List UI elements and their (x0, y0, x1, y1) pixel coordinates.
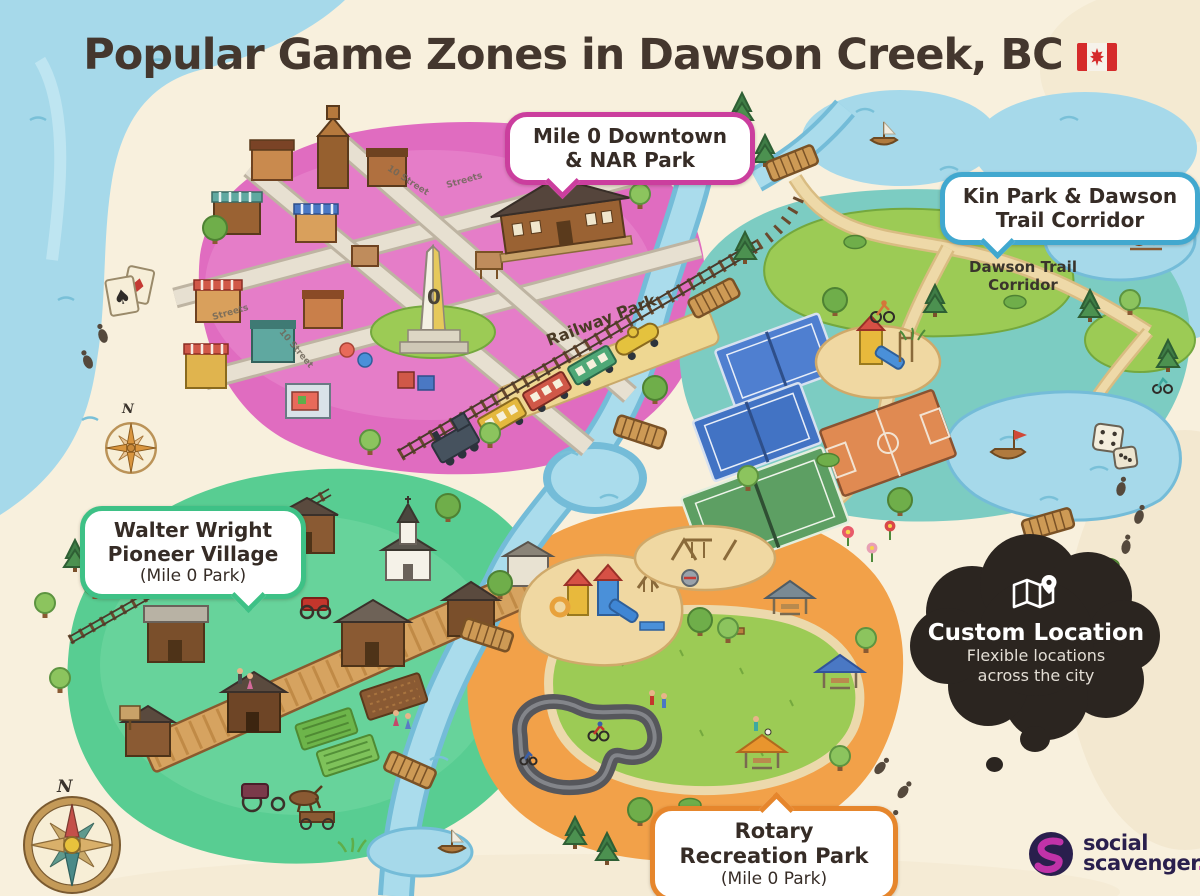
social-scavenger-logo-text: social scavenger. (1083, 834, 1200, 874)
callout-mile0-downtown: Mile 0 Downtown & NAR Park (505, 112, 755, 185)
callout-pioneer-village: Walter Wright Pioneer Village (Mile 0 Pa… (80, 506, 306, 599)
compass-north-label-small: N (122, 402, 134, 417)
social-scavenger-logo: social scavenger. (1028, 831, 1200, 877)
custom-location-content: Custom Location Flexible locations acros… (908, 534, 1164, 744)
dawson-trail-label: Dawson Trail Corridor (950, 258, 1096, 294)
cloud-dot (986, 757, 1003, 772)
custom-location-cloud: Custom Location Flexible locations acros… (908, 534, 1164, 744)
social-scavenger-logo-icon (1028, 831, 1074, 877)
logo-word-scavenger: scavenger. (1083, 854, 1200, 874)
callout-line: Walter Wright (99, 519, 287, 543)
dawson-trail-line1: Dawson Trail (950, 258, 1096, 276)
obelisk-zero-label: 0 (427, 285, 441, 309)
rotary-swings-area (635, 526, 775, 590)
compass-rose-large (24, 797, 120, 893)
callout-line: Pioneer Village (99, 543, 287, 567)
callout-line: Mile 0 Downtown (524, 125, 736, 149)
page-title: Popular Game Zones in Dawson Creek, BC (0, 30, 1200, 82)
compass-north-label: N (57, 777, 73, 797)
custom-location-title: Custom Location (908, 620, 1164, 646)
map-pin-icon (1011, 574, 1061, 612)
callout-kin-park: Kin Park & Dawson Trail Corridor (940, 172, 1200, 245)
callout-line: Recreation Park (669, 844, 879, 869)
callout-line: Kin Park & Dawson (959, 185, 1181, 209)
dawson-trail-line2: Corridor (950, 276, 1096, 294)
page-title-text: Popular Game Zones in Dawson Creek, BC (83, 30, 1063, 80)
callout-subline: (Mile 0 Park) (99, 566, 287, 586)
canada-flag-icon (1077, 32, 1117, 82)
map-canvas: ♦ ♠ (0, 0, 1200, 896)
callout-subline: (Mile 0 Park) (669, 869, 879, 889)
cloud-dot (1020, 726, 1050, 752)
custom-location-sub2: across the city (908, 666, 1164, 686)
compass-rose-small (106, 423, 156, 473)
callout-rotary-park: Rotary Recreation Park (Mile 0 Park) (650, 806, 898, 896)
custom-location-sub1: Flexible locations (908, 646, 1164, 666)
